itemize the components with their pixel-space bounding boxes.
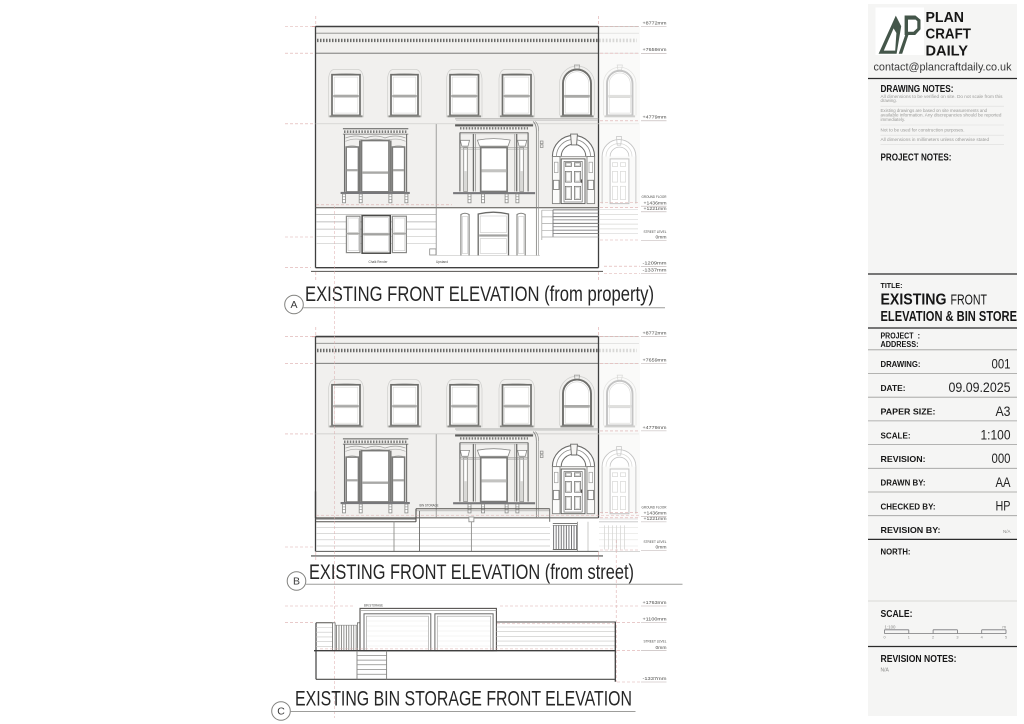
svg-text:STREET LEVEL: STREET LEVEL	[644, 640, 667, 644]
svg-text:DRAWING NOTES:: DRAWING NOTES:	[881, 84, 954, 95]
svg-text:PLAN: PLAN	[926, 10, 965, 26]
svg-text:+1221mm: +1221mm	[644, 516, 667, 521]
svg-text:DATE:: DATE:	[881, 383, 906, 393]
svg-text:GROUND FLOOR: GROUND FLOOR	[642, 505, 667, 509]
svg-text:001: 001	[992, 356, 1011, 371]
svg-text:BIN STORAGE: BIN STORAGE	[364, 603, 383, 607]
svg-text:+1100mm: +1100mm	[643, 616, 668, 621]
svg-text:GROUND FLOOR: GROUND FLOOR	[642, 195, 667, 199]
svg-text:NORTH:: NORTH:	[881, 547, 911, 557]
svg-text:0: 0	[883, 636, 885, 640]
svg-text:EXISTING: EXISTING	[881, 292, 947, 309]
svg-text:5: 5	[1005, 636, 1007, 640]
svg-text:N/A: N/A	[881, 668, 890, 674]
svg-text:EXISTING BIN STORAGE FRONT ELE: EXISTING BIN STORAGE FRONT ELEVATION	[295, 687, 632, 711]
svg-text:+7659mm: +7659mm	[643, 357, 668, 362]
svg-text:ELEVATION & BIN STORE: ELEVATION & BIN STORE	[881, 309, 1018, 325]
svg-text:AA: AA	[996, 475, 1011, 490]
svg-text:+1763mm: +1763mm	[643, 600, 668, 605]
svg-text:+8772mm: +8772mm	[643, 331, 668, 336]
svg-text:PAPER SIZE:: PAPER SIZE:	[881, 407, 936, 417]
svg-text:0mm: 0mm	[656, 645, 667, 650]
svg-text:PROJECT NOTES:: PROJECT NOTES:	[881, 153, 952, 164]
svg-text:EXISTING FRONT ELEVATION (from: EXISTING FRONT ELEVATION (from street)	[309, 560, 634, 584]
svg-text:DRAWING:: DRAWING:	[881, 359, 921, 369]
svg-text:All dimensions in millimeters: All dimensions in millimeters unless oth…	[881, 137, 990, 143]
svg-text:SCALE:: SCALE:	[881, 609, 913, 620]
svg-text:-1209mm: -1209mm	[643, 260, 668, 265]
svg-text:CHECKED BY:: CHECKED BY:	[881, 501, 936, 511]
svg-text:contact@plancraftdaily.co.uk: contact@plancraftdaily.co.uk	[874, 62, 1012, 74]
svg-text:2: 2	[932, 636, 934, 640]
svg-text:EXISTING FRONT ELEVATION (from: EXISTING FRONT ELEVATION (from property)	[305, 282, 654, 306]
svg-text:drawing.: drawing.	[881, 98, 897, 104]
svg-text:4: 4	[981, 636, 983, 640]
svg-text:+8772mm: +8772mm	[643, 21, 668, 26]
svg-text:1: 1	[908, 636, 910, 640]
svg-text:ADDRESS:: ADDRESS:	[881, 340, 919, 349]
svg-text:1:100: 1:100	[885, 625, 897, 630]
svg-text:HP: HP	[996, 499, 1011, 514]
svg-text:1:100: 1:100	[981, 428, 1011, 443]
svg-text:+1436mm: +1436mm	[644, 510, 667, 515]
svg-text:+1436mm: +1436mm	[644, 200, 667, 205]
svg-text:09.09.2025: 09.09.2025	[949, 380, 1011, 395]
svg-text:C: C	[277, 706, 285, 718]
svg-text:+7659mm: +7659mm	[643, 47, 668, 52]
svg-text:+1221mm: +1221mm	[644, 206, 667, 211]
svg-text:SCALE:: SCALE:	[881, 430, 911, 440]
svg-text:BIN STORAGE: BIN STORAGE	[420, 504, 439, 508]
svg-text:N/A: N/A	[1003, 529, 1011, 534]
svg-text:-1337mm: -1337mm	[643, 268, 668, 273]
svg-text:-1337mm: -1337mm	[643, 676, 668, 681]
svg-text:FRONT: FRONT	[951, 293, 988, 309]
svg-text:REVISION BY:: REVISION BY:	[881, 525, 941, 535]
svg-text:Chalk Render: Chalk Render	[369, 260, 389, 264]
svg-text:Not to be used for constructio: Not to be used for construction purposes…	[881, 128, 965, 134]
svg-text:0mm: 0mm	[656, 545, 667, 550]
svg-text:A3: A3	[996, 404, 1011, 419]
svg-text:DAILY: DAILY	[926, 43, 969, 59]
svg-text:REVISION NOTES:: REVISION NOTES:	[881, 654, 957, 665]
svg-text:REVISION:: REVISION:	[881, 454, 926, 464]
svg-text:0mm: 0mm	[656, 235, 667, 240]
svg-text:000: 000	[992, 451, 1011, 466]
svg-text:immediately.: immediately.	[881, 117, 906, 123]
svg-text:m: m	[1002, 625, 1006, 630]
svg-text:Upstand: Upstand	[436, 260, 448, 264]
svg-text:All dimensions to be verified: All dimensions to be verified on site. D…	[881, 94, 1004, 100]
svg-text:+4779mm: +4779mm	[643, 115, 668, 120]
svg-text:A: A	[290, 299, 297, 311]
svg-text:CRAFT: CRAFT	[926, 27, 972, 43]
svg-text:TITLE:: TITLE:	[881, 281, 903, 290]
svg-text:B: B	[293, 576, 300, 588]
svg-text:DRAWN BY:: DRAWN BY:	[881, 478, 926, 488]
svg-text:+4779mm: +4779mm	[643, 425, 668, 430]
svg-text:STREET LEVEL: STREET LEVEL	[644, 230, 667, 234]
svg-text:STREET LEVEL: STREET LEVEL	[644, 540, 667, 544]
svg-text:3: 3	[956, 636, 958, 640]
